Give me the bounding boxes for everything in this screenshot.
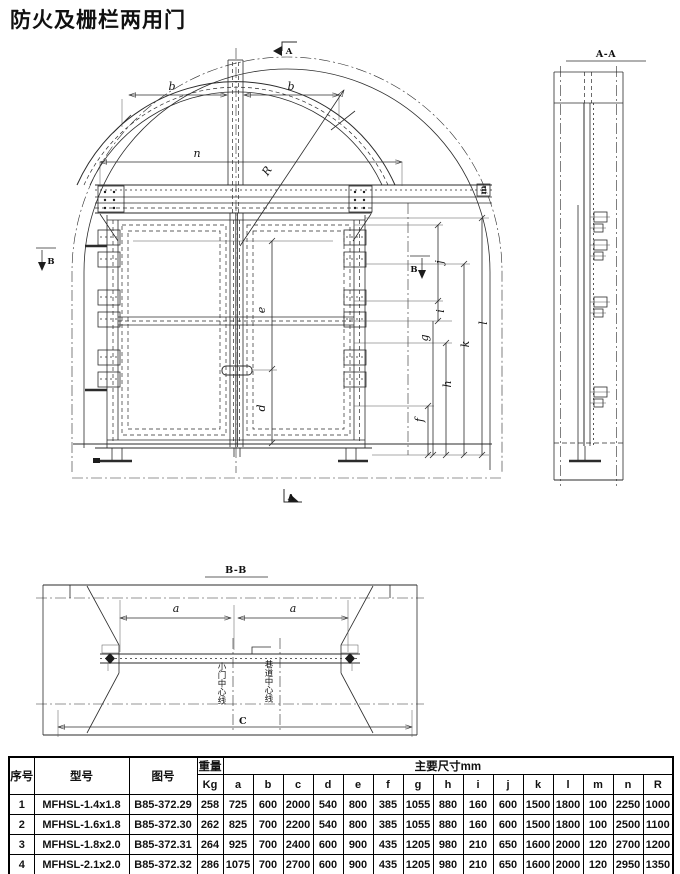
table-cell: 600 bbox=[313, 835, 343, 855]
table-row: 1MFHSL-1.4x1.8B85-372.292587256002000540… bbox=[9, 795, 673, 815]
table-cell: 210 bbox=[463, 855, 493, 874]
table-cell: 264 bbox=[197, 835, 223, 855]
table-cell: 2200 bbox=[283, 815, 313, 835]
table-row: 4MFHSL-2.1x2.0B85-372.322861075700270060… bbox=[9, 855, 673, 874]
foot-anchors bbox=[93, 448, 368, 463]
table-cell: 2 bbox=[9, 815, 34, 835]
table-cell: 262 bbox=[197, 815, 223, 835]
dim-label-c: C bbox=[239, 716, 247, 727]
table-cell: 210 bbox=[463, 835, 493, 855]
header-drawing-no: 图号 bbox=[129, 757, 197, 795]
technical-drawing: b b n R e d bbox=[0, 0, 680, 752]
table-cell: 120 bbox=[583, 855, 613, 874]
table-cell: 900 bbox=[343, 835, 373, 855]
table-cell: 700 bbox=[253, 835, 283, 855]
table-cell: 540 bbox=[313, 795, 343, 815]
table-cell: 435 bbox=[373, 835, 403, 855]
table-cell: 1205 bbox=[403, 835, 433, 855]
table-cell: 600 bbox=[493, 795, 523, 815]
section-hinges bbox=[590, 212, 610, 407]
table-cell: 880 bbox=[433, 795, 463, 815]
table-cell: 980 bbox=[433, 835, 463, 855]
dim-a: a a bbox=[120, 600, 348, 652]
table-cell: 2000 bbox=[553, 855, 583, 874]
svg-text:A: A bbox=[285, 47, 293, 57]
dim-label-e: e bbox=[255, 306, 268, 313]
table-cell: B85-372.29 bbox=[129, 795, 197, 815]
door-centerline-label: 小门中心线 bbox=[217, 661, 227, 704]
table-cell: 2700 bbox=[283, 855, 313, 874]
table-cell: MFHSL-2.1x2.0 bbox=[34, 855, 129, 874]
header-dim-f: f bbox=[373, 775, 403, 795]
header-dim-j: j bbox=[493, 775, 523, 795]
dim-c: C bbox=[58, 710, 412, 737]
table-cell: 1200 bbox=[643, 835, 673, 855]
table-cell: 980 bbox=[433, 855, 463, 874]
tunnel-centerline-label: 巷道中心线 bbox=[264, 660, 274, 703]
table-cell: 1800 bbox=[553, 815, 583, 835]
svg-text:B: B bbox=[410, 265, 417, 275]
table-cell: 1 bbox=[9, 795, 34, 815]
table-cell: 160 bbox=[463, 795, 493, 815]
spec-table-header: 序号 型号 图号 重量 主要尺寸mm Kg abcdefghijklmnR bbox=[9, 757, 673, 795]
table-cell: 385 bbox=[373, 795, 403, 815]
header-dim-g: g bbox=[403, 775, 433, 795]
dim-label-g: g bbox=[418, 334, 431, 341]
table-cell: 1075 bbox=[223, 855, 253, 874]
table-cell: MFHSL-1.4x1.8 bbox=[34, 795, 129, 815]
header-dim-d: d bbox=[313, 775, 343, 795]
section-mark-b-left: B bbox=[36, 248, 56, 271]
table-cell: 1055 bbox=[403, 815, 433, 835]
section-aa-title: A-A bbox=[595, 49, 616, 60]
table-cell: 1500 bbox=[523, 795, 553, 815]
section-mark-a-top: A bbox=[273, 42, 297, 57]
table-cell: 2000 bbox=[553, 835, 583, 855]
hinges bbox=[98, 230, 366, 387]
table-cell: 600 bbox=[253, 795, 283, 815]
section-bb-title: B-B bbox=[225, 565, 247, 576]
table-cell: 258 bbox=[197, 795, 223, 815]
table-cell: 900 bbox=[343, 855, 373, 874]
dim-r: R bbox=[240, 90, 344, 246]
dim-stack-right: j i g h f k l m bbox=[354, 184, 490, 458]
header-model: 型号 bbox=[34, 757, 129, 795]
table-cell: 800 bbox=[343, 795, 373, 815]
header-dim-n: n bbox=[613, 775, 643, 795]
table-cell: 1100 bbox=[643, 815, 673, 835]
lintel-beam bbox=[95, 185, 492, 213]
dim-label-d: d bbox=[255, 404, 268, 411]
dim-label-b-left: b bbox=[168, 80, 175, 93]
table-cell: 600 bbox=[493, 815, 523, 835]
svg-text:A: A bbox=[287, 493, 295, 503]
dim-label-l: l bbox=[477, 321, 490, 325]
header-dim-R: R bbox=[643, 775, 673, 795]
front-view: b b n R e d bbox=[36, 42, 502, 503]
table-cell: 650 bbox=[493, 835, 523, 855]
table-cell: 435 bbox=[373, 855, 403, 874]
table-cell: 2400 bbox=[283, 835, 313, 855]
header-weight: 重量 bbox=[197, 757, 223, 775]
dim-label-h: h bbox=[441, 380, 454, 387]
header-dim-m: m bbox=[583, 775, 613, 795]
table-cell: MFHSL-1.6x1.8 bbox=[34, 815, 129, 835]
table-cell: 925 bbox=[223, 835, 253, 855]
dim-label-m: m bbox=[479, 186, 489, 195]
table-cell: 825 bbox=[223, 815, 253, 835]
dim-label-j: j bbox=[433, 260, 446, 267]
dim-e-d: e d bbox=[252, 238, 277, 446]
header-dims-group: 主要尺寸mm bbox=[223, 757, 673, 775]
dim-label-b-right: b bbox=[287, 80, 294, 93]
header-dim-k: k bbox=[523, 775, 553, 795]
dim-label-a-right: a bbox=[290, 602, 297, 615]
table-row: 2MFHSL-1.6x1.8B85-372.302628257002200540… bbox=[9, 815, 673, 835]
dim-n: n bbox=[100, 147, 402, 186]
table-cell: 2000 bbox=[283, 795, 313, 815]
table-cell: 120 bbox=[583, 835, 613, 855]
svg-text:B: B bbox=[47, 257, 54, 267]
table-cell: 1000 bbox=[643, 795, 673, 815]
dim-label-a-left: a bbox=[173, 602, 180, 615]
table-cell: 1055 bbox=[403, 795, 433, 815]
table-cell: 800 bbox=[343, 815, 373, 835]
section-bb-view: B-B 小门中心线 bbox=[36, 565, 424, 737]
table-cell: 1500 bbox=[523, 815, 553, 835]
table-cell: 1350 bbox=[643, 855, 673, 874]
table-cell: 2250 bbox=[613, 795, 643, 815]
table-cell: 1800 bbox=[553, 795, 583, 815]
table-cell: 2950 bbox=[613, 855, 643, 874]
table-cell: 725 bbox=[223, 795, 253, 815]
dim-label-R: R bbox=[259, 164, 275, 179]
header-dim-b: b bbox=[253, 775, 283, 795]
table-cell: 600 bbox=[313, 855, 343, 874]
table-cell: 160 bbox=[463, 815, 493, 835]
header-dim-e: e bbox=[343, 775, 373, 795]
table-cell: B85-372.30 bbox=[129, 815, 197, 835]
table-cell: 650 bbox=[493, 855, 523, 874]
table-cell: B85-372.31 bbox=[129, 835, 197, 855]
spec-table-body: 1MFHSL-1.4x1.8B85-372.292587256002000540… bbox=[9, 795, 673, 874]
table-cell: MFHSL-1.8x2.0 bbox=[34, 835, 129, 855]
dim-label-f: f bbox=[413, 416, 426, 423]
table-cell: 2700 bbox=[613, 835, 643, 855]
header-dim-c: c bbox=[283, 775, 313, 795]
section-mark-b-right: B bbox=[410, 256, 430, 279]
table-cell: 700 bbox=[253, 815, 283, 835]
table-cell: 540 bbox=[313, 815, 343, 835]
page-title: 防火及栅栏两用门 bbox=[10, 4, 186, 34]
dim-label-n: n bbox=[193, 147, 200, 160]
splayed-jambs bbox=[87, 586, 373, 733]
table-cell: 700 bbox=[253, 855, 283, 874]
table-cell: 1600 bbox=[523, 835, 553, 855]
header-weight-unit: Kg bbox=[197, 775, 223, 795]
table-cell: 880 bbox=[433, 815, 463, 835]
dim-label-k: k bbox=[459, 340, 472, 347]
table-cell: 100 bbox=[583, 815, 613, 835]
table-cell: 2500 bbox=[613, 815, 643, 835]
table-cell: 4 bbox=[9, 855, 34, 874]
table-cell: 100 bbox=[583, 795, 613, 815]
header-dim-l: l bbox=[553, 775, 583, 795]
table-cell: 385 bbox=[373, 815, 403, 835]
header-dim-i: i bbox=[463, 775, 493, 795]
header-seq: 序号 bbox=[9, 757, 34, 795]
table-cell: 1205 bbox=[403, 855, 433, 874]
section-aa-view: A-A bbox=[554, 49, 646, 486]
dim-label-i: i bbox=[434, 309, 447, 313]
door-slab bbox=[100, 645, 360, 671]
table-cell: 3 bbox=[9, 835, 34, 855]
table-cell: B85-372.32 bbox=[129, 855, 197, 874]
door-frame bbox=[73, 213, 492, 448]
table-cell: 286 bbox=[197, 855, 223, 874]
spec-table: 序号 型号 图号 重量 主要尺寸mm Kg abcdefghijklmnR 1M… bbox=[8, 756, 674, 874]
table-cell: 1600 bbox=[523, 855, 553, 874]
table-row: 3MFHSL-1.8x2.0B85-372.312649257002400600… bbox=[9, 835, 673, 855]
section-mark-a-bottom: A bbox=[284, 489, 302, 503]
header-dim-h: h bbox=[433, 775, 463, 795]
header-dim-a: a bbox=[223, 775, 253, 795]
